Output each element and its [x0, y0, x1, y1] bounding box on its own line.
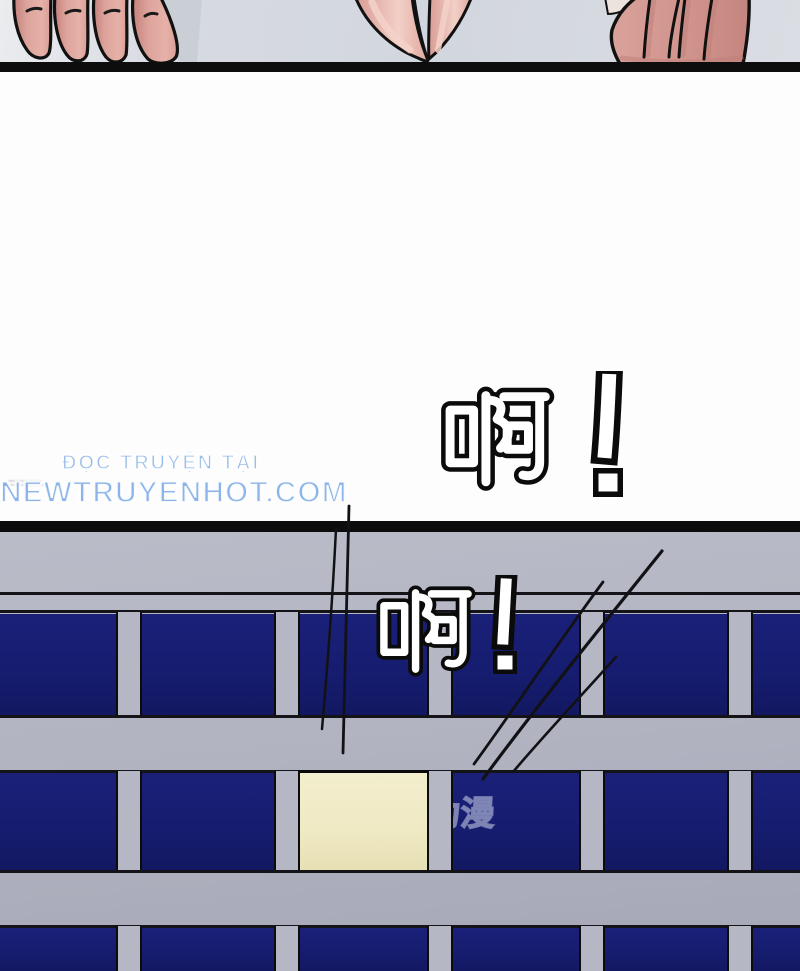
site-watermark-line1: ĐỌC TRUYỆN TẠI — [0, 452, 322, 475]
window-mullion — [579, 612, 605, 717]
window-row — [0, 928, 800, 971]
left-hand — [14, 0, 202, 63]
window-mullion — [274, 612, 300, 717]
panel-border-building — [0, 521, 800, 532]
right-hand — [605, 0, 749, 64]
window-mullion — [427, 612, 453, 717]
window-mullion — [427, 771, 453, 872]
tiny-watermark-smudge — [2, 480, 48, 488]
window-mullion — [274, 771, 300, 872]
shout-text-1 — [437, 371, 647, 503]
site-watermark-line2: NEWTRUYENHOT.COM — [0, 476, 322, 510]
window-mullion — [116, 926, 142, 971]
facade-line — [0, 870, 800, 874]
window-mullion — [727, 771, 753, 872]
window-mullion — [579, 771, 605, 872]
window-row: 腾讯动漫 — [0, 773, 800, 870]
grip-fingers — [355, 0, 472, 61]
site-watermark: ĐỌC TRUYỆN TẠI NEWTRUYENHOT.COM — [0, 452, 322, 510]
window-mullion — [274, 926, 300, 971]
facade-ledge-line — [0, 592, 800, 595]
window-mullion — [116, 612, 142, 717]
exclamation-mark — [593, 381, 623, 497]
window-row — [0, 614, 800, 715]
comic-page: ĐỌC TRUYỆN TẠI NEWTRUYENHOT.COM — [0, 0, 800, 971]
window-mullion — [727, 926, 753, 971]
panel-border-top — [0, 62, 800, 72]
window-mullion — [727, 612, 753, 717]
window-mullion — [427, 926, 453, 971]
building-panel: 腾讯动漫 — [0, 521, 800, 971]
facade-line — [0, 715, 800, 719]
lit-window — [297, 770, 430, 873]
window-mullion — [579, 926, 605, 971]
window-mullion — [116, 771, 142, 872]
